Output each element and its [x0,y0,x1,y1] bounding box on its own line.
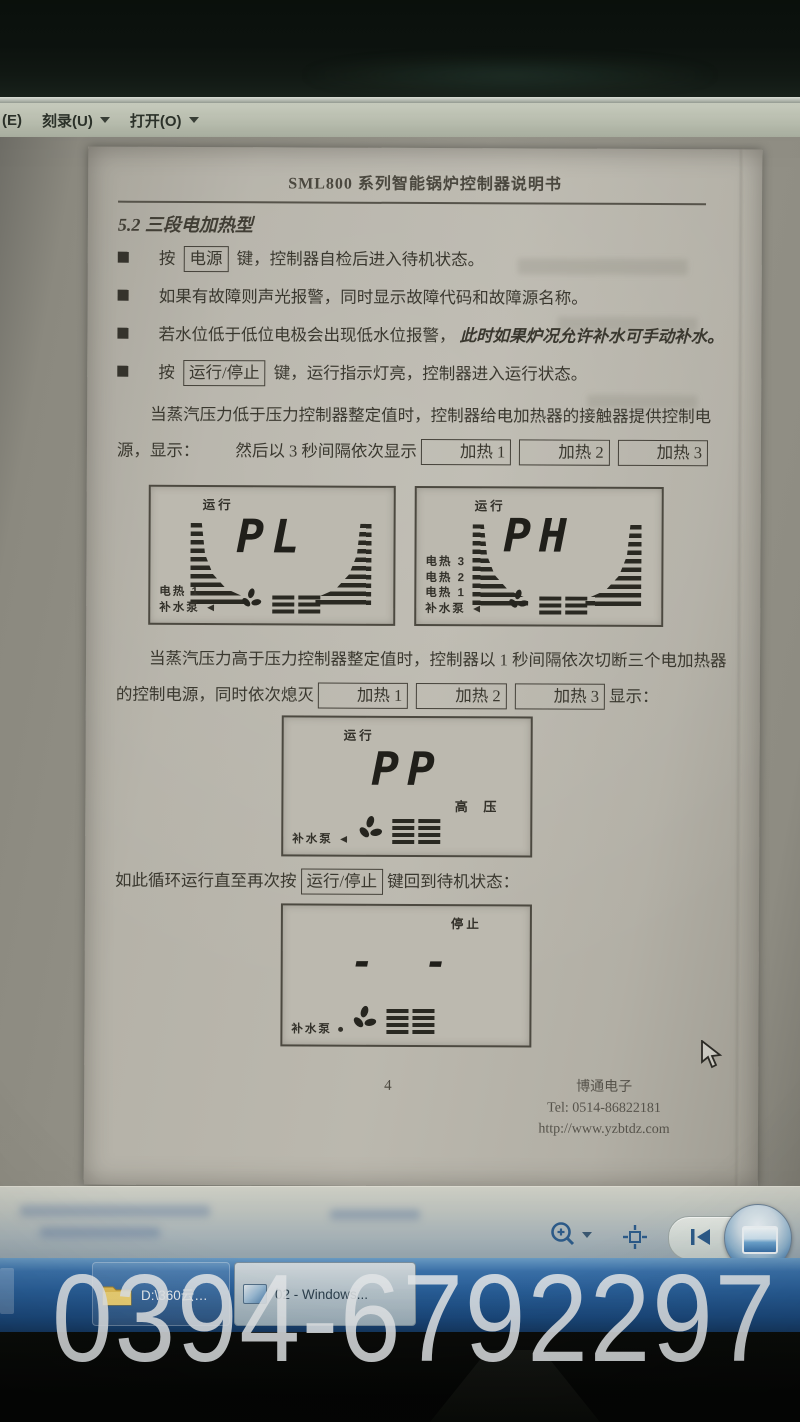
key-run-stop: 运行/停止 [183,360,266,386]
lcd-panel-standby: 停止 - - 补水泵 ● [280,903,532,1047]
key-heat1: 加热 1 [421,439,511,465]
para-text: 然后以 3 秒间隔依次显示 [235,441,417,461]
doc-body: 按 电源 键，控制器自检后进入待机状态。 如果有故障则声光报警，同时显示故障代码… [117,241,732,472]
para-text: 显示： [609,687,659,706]
bullet-text: 按 [158,363,175,382]
key-heat2: 加热 2 [519,439,609,465]
fan-icon [240,588,262,615]
bullet-text: 若水位低于低位电极会出现低水位报警， [159,325,456,345]
viewer-menubar: (E) 刻录(U) 打开(O) [0,103,800,138]
bullet-text: 键，控制器自检后进入待机状态。 [237,249,485,269]
key-heat3: 加热 3 [515,683,605,709]
zoom-control[interactable] [548,1220,592,1250]
heater-bars-icon [272,595,320,614]
fan-icon [357,816,383,847]
viewer-canvas: SML800 系列智能锅炉控制器说明书 5.2 三段电加热型 按 电源 键，控制… [0,137,800,1186]
loop-line: 如此循环运行直至再次按运行/停止键回到待机状态： [115,863,729,902]
footer-tel: Tel: 0514-86822181 [476,1097,732,1119]
heater-bars-icon [539,597,587,616]
menu-item-open-label: 打开(O) [130,110,182,131]
lcd-high-pressure-label: 高 压 [455,796,503,815]
bullet-power: 按 电源 键，控制器自检后进入待机状态。 [118,241,732,280]
chevron-down-icon [189,117,199,123]
heater-bars-icon [392,819,440,846]
paper-crease [736,149,744,1187]
statusbar-blur-text [330,1209,420,1220]
key-power: 电源 [183,246,228,272]
paragraph-low-pressure: 当蒸汽压力低于压力控制器整定值时，控制器给电加热器的接触器提供控制电源，显示：然… [117,397,731,472]
lcd-digits: PP [283,741,530,796]
para-text: 如此循环运行直至再次按 [115,871,297,891]
page-number: 4 [384,1078,392,1095]
lcd-panel-pl: 运行 PL 电热 1 补水泵 ◄ [148,485,396,626]
lcd-indicator-labels: 电热 1 补水泵 ◄ [159,585,218,616]
fan-icon [507,589,529,616]
para-text: 键回到待机状态： [387,872,519,892]
mouse-cursor [700,1040,726,1070]
menu-item-open[interactable]: 打开(O) [120,103,209,137]
doc-header-title: SML800 系列智能锅炉控制器说明书 [88,169,762,196]
lcd-panel-pp: 运行 PP 高 压 补水泵 ◄ [281,715,533,857]
lcd-status-label: 停止 [451,913,482,932]
bullet-low-water: 若水位低于低位电极会出现低水位报警， 此时如果炉况允许补水可手动补水。 [117,317,731,356]
bullet-fault: 如果有故障则声光报警，同时显示故障代码和故障源名称。 [118,279,732,318]
lcd-indicator-labels: 补水泵 ◄ [292,832,351,848]
lcd-indicator-labels: 电热 3 电热 2 电热 1 补水泵 ◄ [425,555,484,617]
bullet-square-icon [117,366,128,377]
watermark-text: 0394-6792297 [52,1248,777,1390]
menu-item-burn[interactable]: 刻录(U) [32,103,120,137]
magnifier-plus-icon [548,1220,578,1250]
key-heat3: 加热 3 [618,440,708,466]
bullet-run-stop: 按 运行/停止 键，运行指示灯亮，控制器进入运行状态。 [117,355,731,394]
lcd-indicator-labels: 补水泵 ● [291,1022,346,1038]
key-heat2: 加热 2 [416,683,506,709]
menu-item-email[interactable]: (E) [0,103,32,137]
chevron-down-icon [582,1232,592,1238]
footer-url: http://www.yzbtdz.com [476,1118,732,1140]
paragraph-high-pressure: 当蒸汽压力高于压力控制器整定值时，控制器以 1 秒间隔依次切断三个电加热器的控制… [116,641,730,716]
doc-body: 当蒸汽压力高于压力控制器整定值时，控制器以 1 秒间隔依次切断三个电加热器的控制… [116,641,730,716]
monitor-bezel [0,0,800,100]
bullet-text: 按 [159,249,176,268]
taskbar-partial-icon[interactable] [0,1268,14,1314]
bullet-text: 如果有故障则声光报警，同时显示故障代码和故障源名称。 [159,287,588,308]
actual-size-icon [622,1224,648,1250]
key-heat1: 加热 1 [318,683,408,709]
footer-company-block: 博通电子 Tel: 0514-86822181 http://www.yzbtd… [476,1076,732,1140]
statusbar-blur-text [20,1205,210,1217]
statusbar-blur-text [40,1227,160,1238]
document-page: SML800 系列智能锅炉控制器说明书 5.2 三段电加热型 按 电源 键，控制… [84,147,763,1188]
doc-section-title: 5.2 三段电加热型 [118,211,253,238]
bullet-text-italic: 此时如果炉况允许补水可手动补水。 [460,326,724,346]
bullet-square-icon [118,290,129,301]
bullet-square-icon [118,252,129,263]
fan-icon [352,1006,378,1037]
bullet-square-icon [117,328,128,339]
bezel-reflection [300,55,720,95]
lcd-digits: - - [283,939,530,984]
lcd-panel-ph: 运行 PH 电热 3 电热 2 电热 1 补水泵 ◄ [414,486,664,627]
monitor-photo: (E) 刻录(U) 打开(O) SML800 系列智能锅炉控制器说明书 5.2 … [0,0,800,1422]
footer-company: 博通电子 [476,1076,732,1098]
menu-item-burn-label: 刻录(U) [42,110,93,131]
doc-body: 如此循环运行直至再次按运行/停止键回到待机状态： [115,863,729,902]
previous-icon [688,1226,714,1248]
bullet-text: 键，运行指示灯亮，控制器进入运行状态。 [274,363,588,383]
doc-header-rule [118,201,706,206]
key-run-stop: 运行/停止 [301,868,384,894]
heater-bars-icon [386,1009,434,1036]
chevron-down-icon [100,117,110,123]
